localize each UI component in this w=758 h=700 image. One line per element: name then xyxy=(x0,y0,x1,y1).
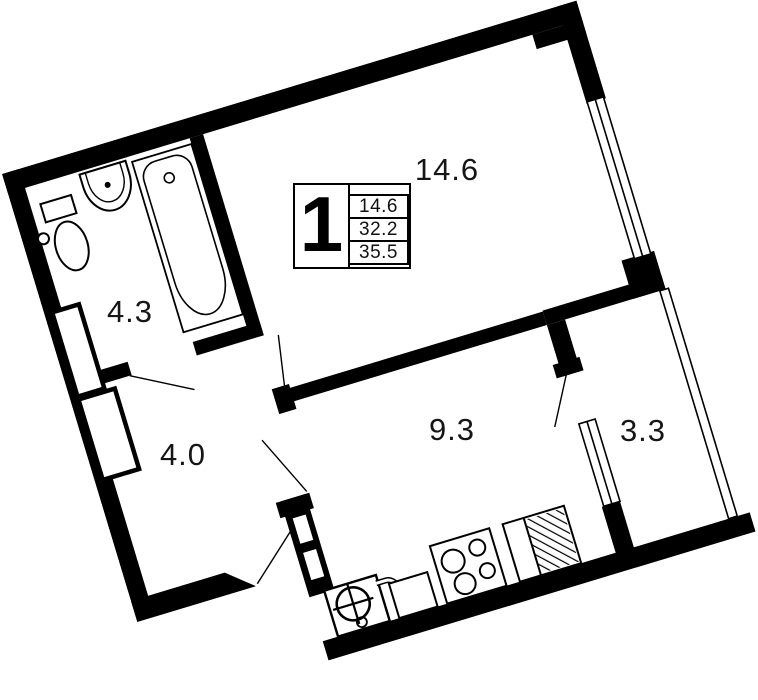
legend-areas-column: 14.6 32.2 35.5 xyxy=(350,185,409,267)
window-living-room-centerline xyxy=(595,99,642,256)
room-label-balcony: 3.3 xyxy=(620,413,666,449)
toilet-tank xyxy=(40,195,76,222)
legend-room-count: 1 xyxy=(300,185,343,263)
wall-balcony-top xyxy=(543,275,666,325)
leader-line-balcony-wall xyxy=(540,371,581,427)
room-label-living: 14.6 xyxy=(415,152,479,188)
bathroom-sink xyxy=(79,161,138,217)
wall-below-balcony-window xyxy=(602,501,635,554)
legend-area-residential: 32.2 xyxy=(350,217,409,242)
sink-outer xyxy=(79,161,138,217)
balcony-glazing xyxy=(660,288,737,518)
leader-line-bathroom-wall xyxy=(130,359,195,406)
floor-plan-drawing xyxy=(2,0,758,700)
legend-room-count-cell: 1 xyxy=(295,185,350,267)
floor-plan-rotated-layer xyxy=(2,0,758,700)
legend-area-total: 35.5 xyxy=(350,240,409,265)
room-label-kitchen: 9.3 xyxy=(429,412,475,448)
legend-area-living: 14.6 xyxy=(350,194,409,219)
leader-line-kitchen-wall xyxy=(262,432,307,499)
wall-hall-bottom xyxy=(131,565,256,622)
floor-plan-canvas: 14.6 4.3 4.0 9.3 3.3 1 14.6 32.2 35.5 xyxy=(0,0,758,700)
vent-shaft-hallway xyxy=(78,389,139,480)
room-label-hallway: 4.0 xyxy=(160,437,206,473)
legend-box: 1 14.6 32.2 35.5 xyxy=(293,183,411,269)
wall-right-upper xyxy=(557,1,606,104)
toilet-bowl xyxy=(49,217,94,274)
room-label-bathroom: 4.3 xyxy=(107,294,153,330)
wall-top xyxy=(2,1,582,194)
wall-living-kitchen xyxy=(281,312,547,405)
